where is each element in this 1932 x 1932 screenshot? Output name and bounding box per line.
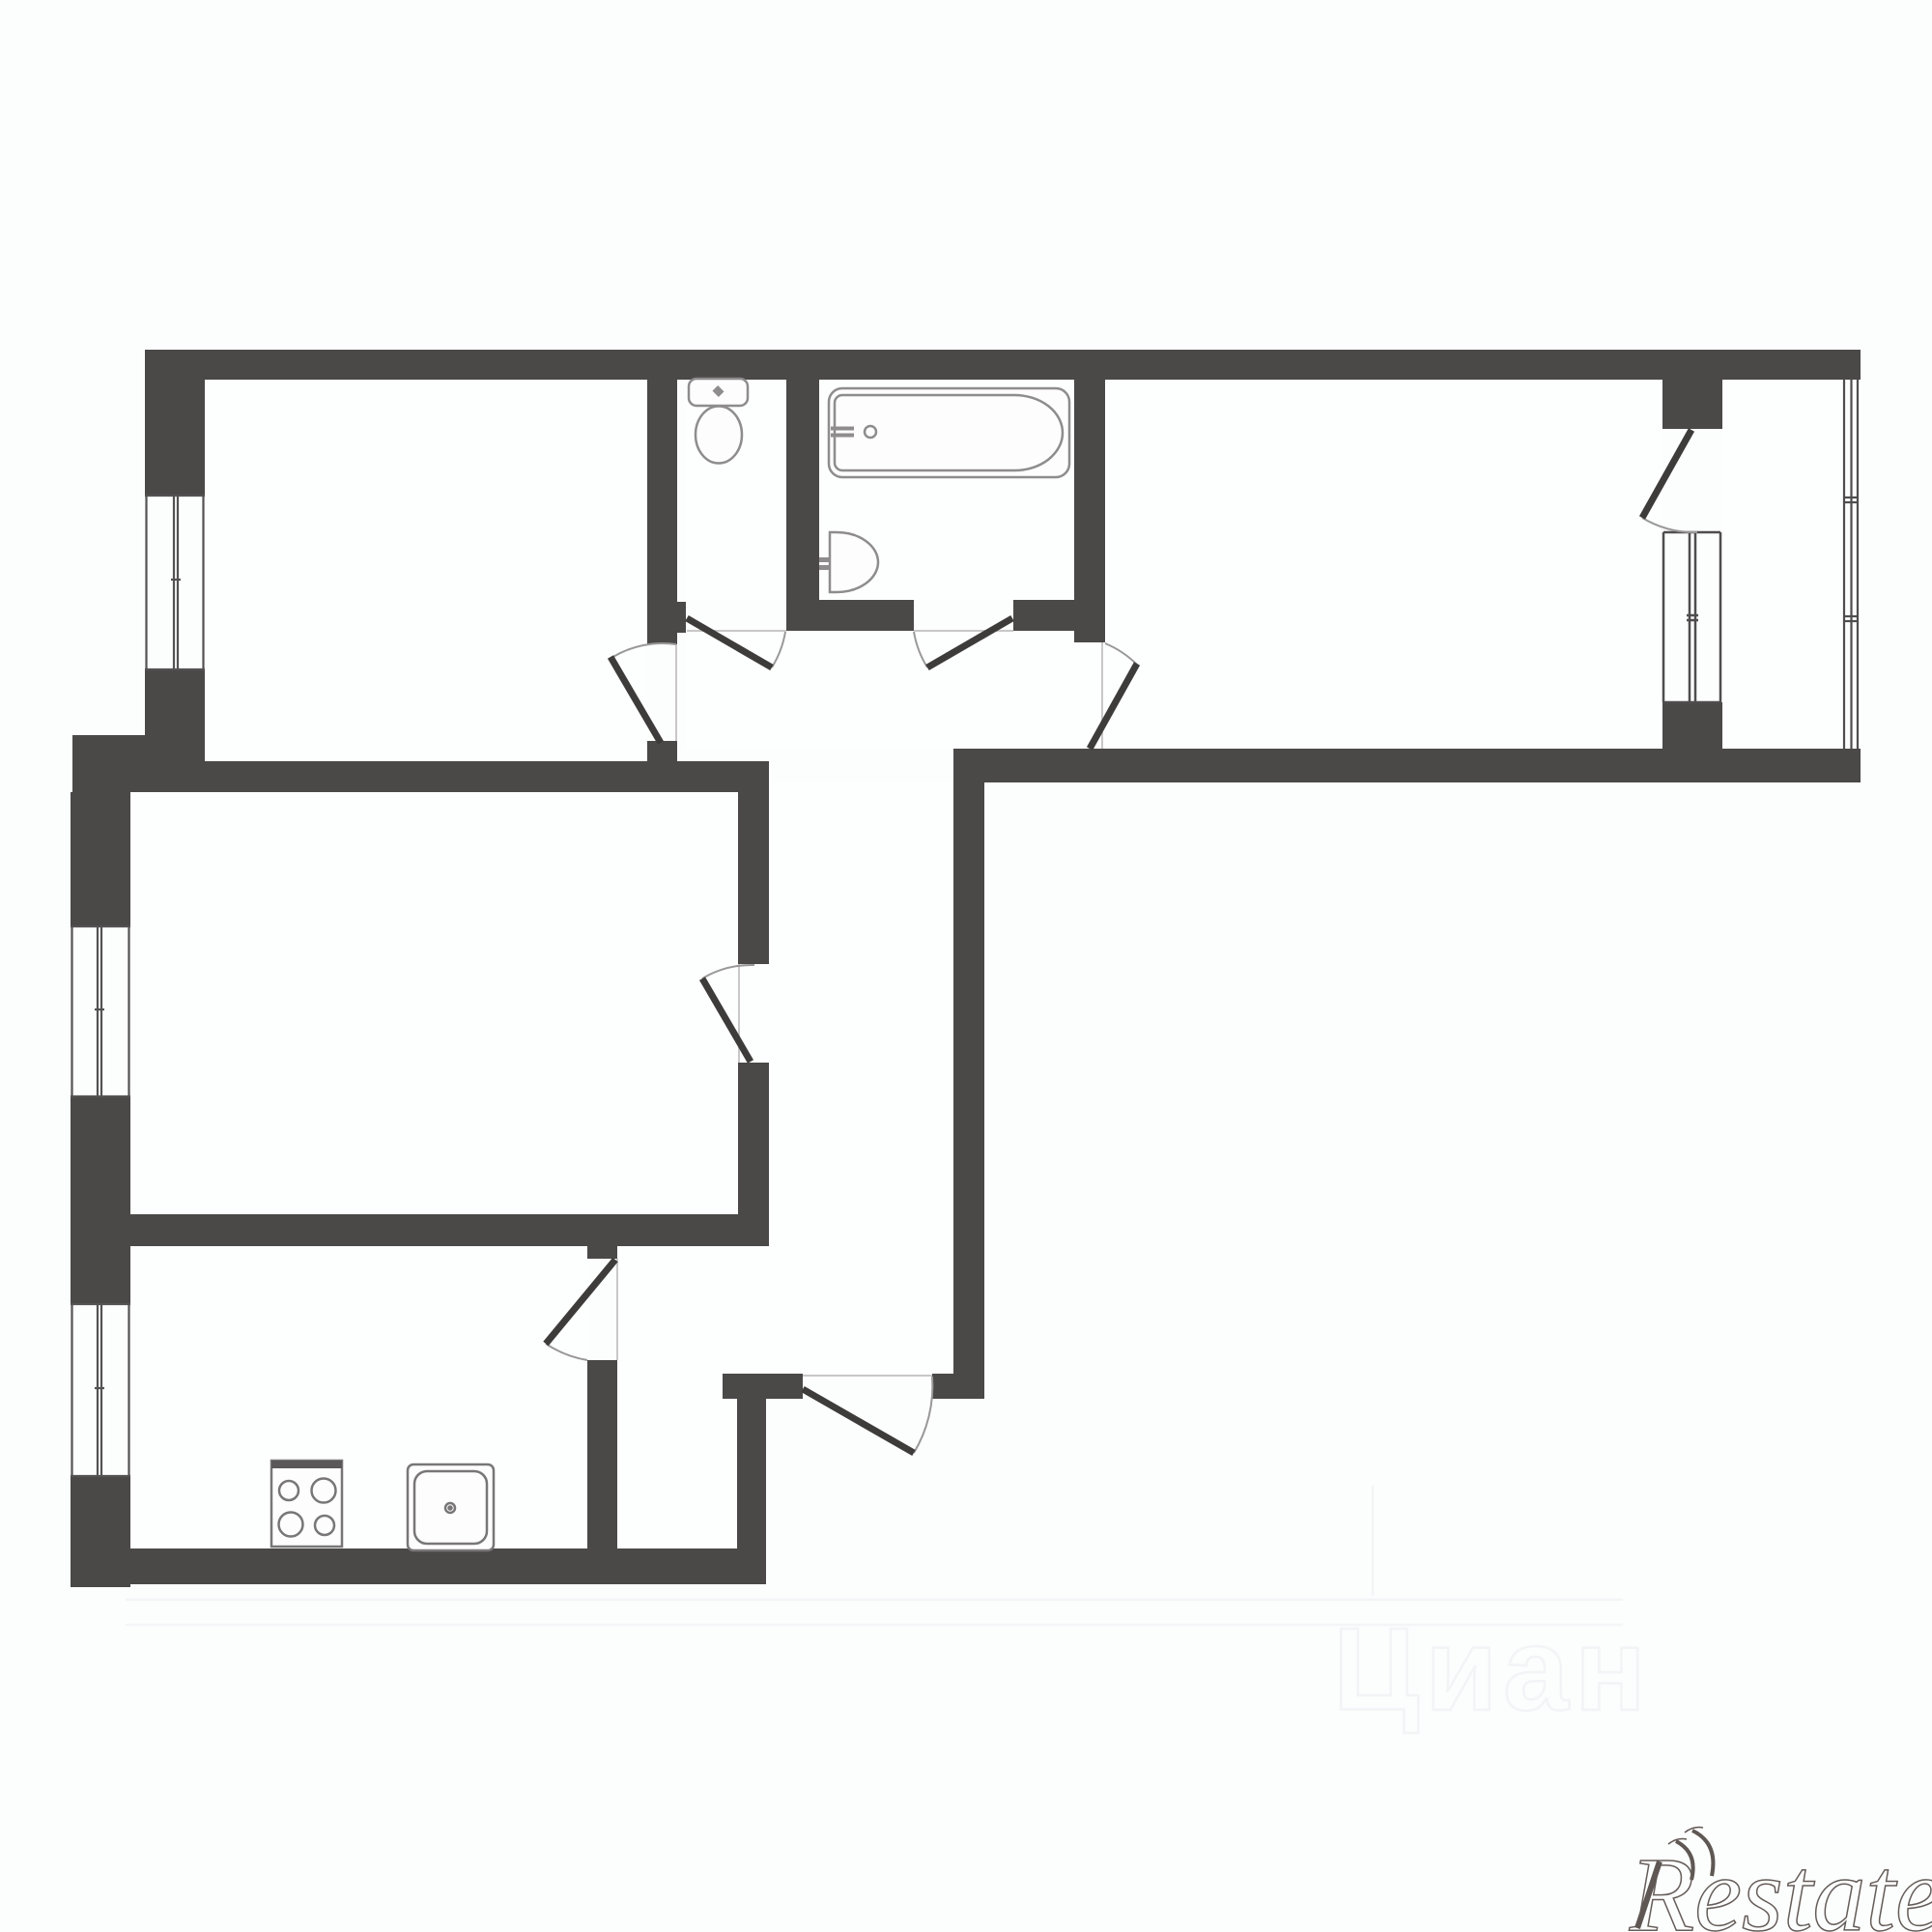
svg-text:Restate: Restate xyxy=(1629,1835,1932,1932)
svg-text:Циан: Циан xyxy=(1333,1604,1652,1735)
